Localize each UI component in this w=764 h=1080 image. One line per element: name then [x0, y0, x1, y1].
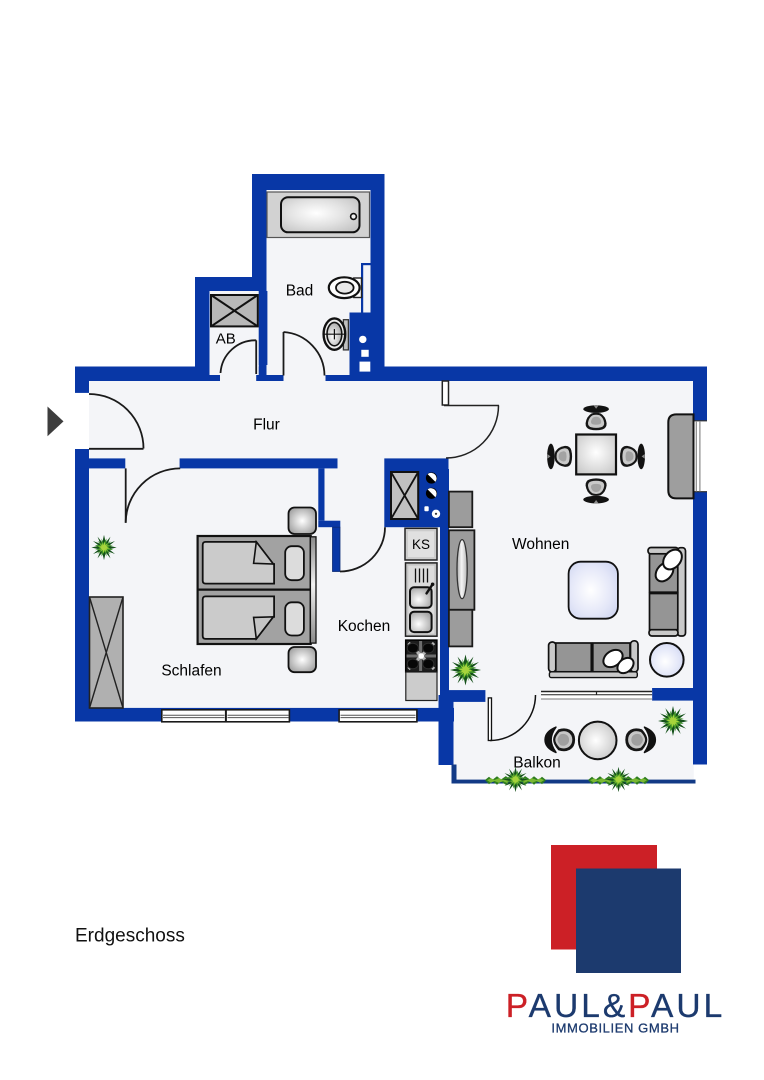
svg-text:Erdgeschoss: Erdgeschoss — [75, 926, 185, 947]
svg-text:Wohnen: Wohnen — [512, 536, 569, 553]
svg-text:KS: KS — [412, 537, 430, 552]
svg-text:Flur: Flur — [253, 417, 280, 434]
svg-text:Balkon: Balkon — [513, 755, 560, 772]
svg-text:Kochen: Kochen — [338, 618, 391, 635]
svg-text:Schlafen: Schlafen — [161, 663, 221, 680]
svg-text:Bad: Bad — [286, 283, 314, 300]
svg-text:AB: AB — [216, 331, 236, 348]
svg-text:IMMOBILIEN GMBH: IMMOBILIEN GMBH — [551, 1021, 679, 1036]
svg-text:PAUL&PAUL: PAUL&PAUL — [506, 988, 725, 1025]
